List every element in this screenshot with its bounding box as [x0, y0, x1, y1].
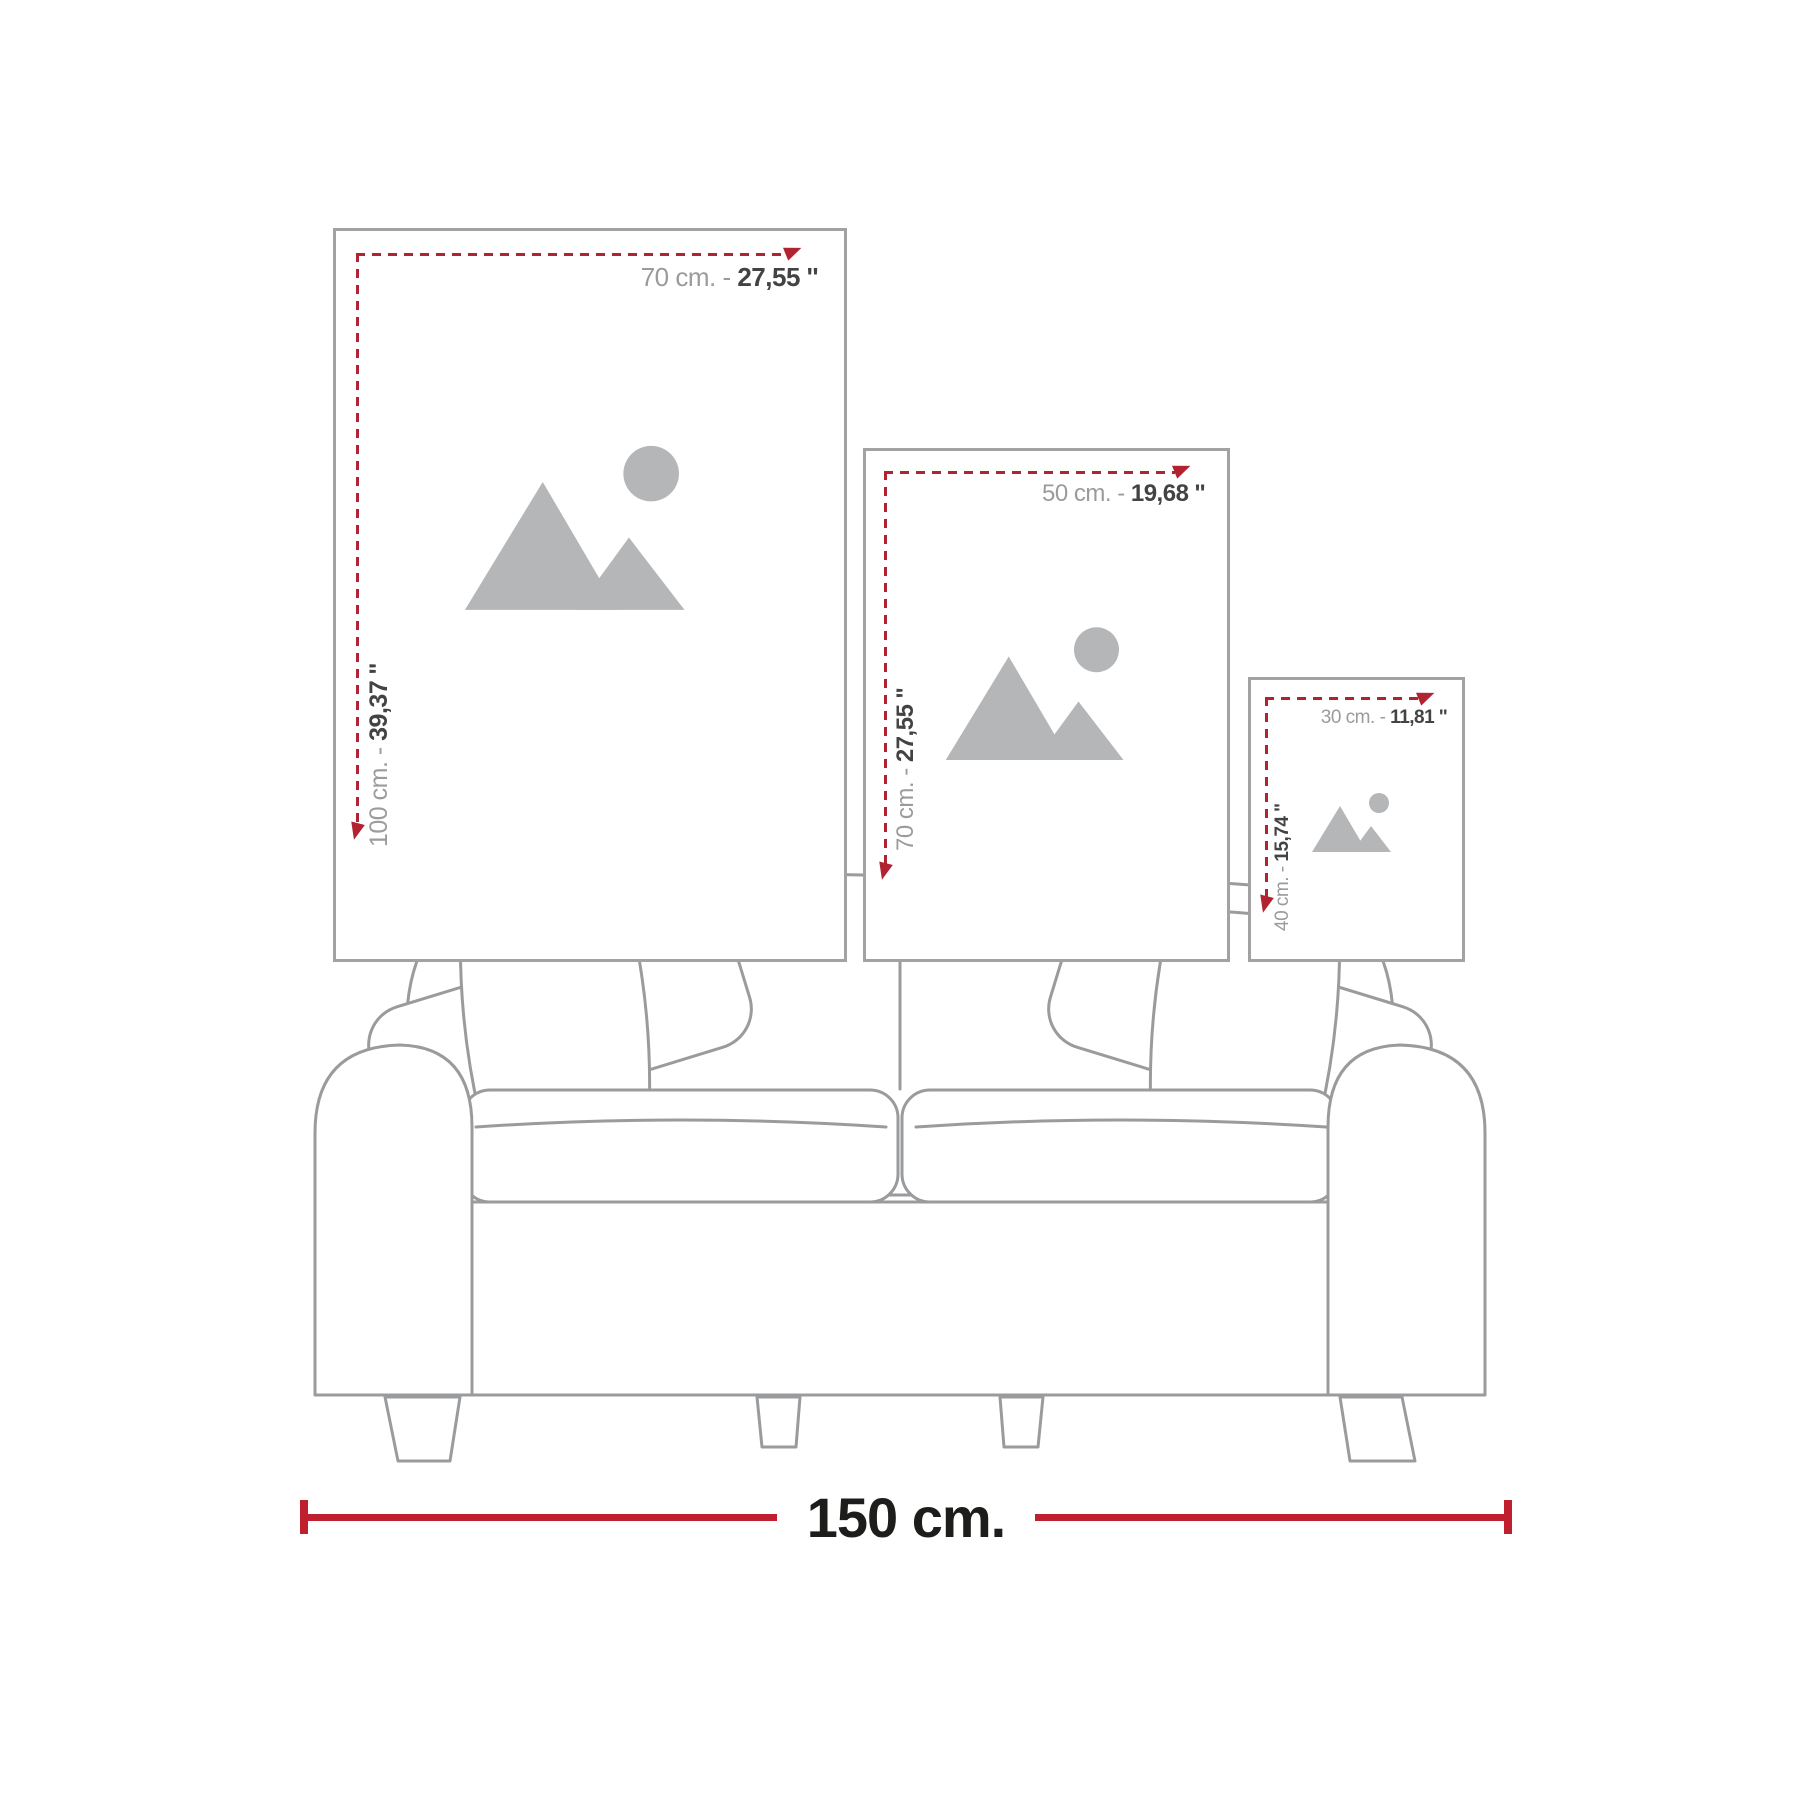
measure-line-left: [308, 1514, 777, 1521]
height-inches-text: 15,74 '': [1272, 804, 1293, 862]
width-measure-dashed-line: [884, 471, 1175, 474]
height-cm-text: 100 cm. -: [365, 741, 393, 847]
height-cm-text: 70 cm. -: [892, 762, 919, 851]
width-inches-text: 19,68 '': [1131, 480, 1205, 507]
image-placeholder-icon: [1307, 792, 1407, 856]
sofa-width-label: 150 cm.: [807, 1485, 1006, 1550]
arrow-down-icon: [347, 822, 365, 842]
height-measure-dashed-line: [356, 253, 359, 829]
width-label: 30 cm. - 11,81 '': [1321, 707, 1447, 729]
width-inches-text: 11,81 '': [1390, 707, 1447, 728]
image-placeholder-icon: [934, 625, 1159, 769]
measure-endcap-left: [300, 1500, 308, 1534]
height-inches-text: 39,37 '': [365, 663, 393, 740]
width-label: 50 cm. - 19,68 '': [1042, 480, 1205, 508]
width-measure-dashed-line: [356, 253, 786, 256]
height-measure-dashed-line: [1265, 697, 1268, 903]
width-measure-dashed-line: [1265, 697, 1420, 700]
poster-frame-70x100: 70 cm. - 27,55 '' 100 cm. - 39,37 '': [333, 228, 847, 962]
size-guide-diagram: 70 cm. - 27,55 '' 100 cm. - 39,37 '' 50 …: [0, 0, 1800, 1800]
arrow-right-icon: [1416, 686, 1437, 705]
height-label: 40 cm. - 15,74 '': [1272, 804, 1294, 931]
height-label: 70 cm. - 27,55 '': [892, 688, 920, 851]
sofa-foot-mid-right: [1000, 1397, 1043, 1447]
width-cm-text: 70 cm. -: [641, 262, 738, 292]
sofa-foot-right: [1340, 1397, 1415, 1461]
poster-frame-30x40: 30 cm. - 11,81 '' 40 cm. - 15,74 '': [1248, 677, 1465, 962]
height-measure-dashed-line: [884, 471, 887, 869]
width-inches-text: 27,55 '': [737, 262, 818, 292]
image-placeholder-icon: [451, 443, 729, 621]
sofa-base: [450, 1202, 1350, 1395]
arrow-right-icon: [783, 241, 804, 260]
measure-endcap-right: [1504, 1500, 1512, 1534]
width-cm-text: 50 cm. -: [1042, 480, 1131, 507]
seat-cushion-left: [462, 1090, 898, 1202]
width-cm-text: 30 cm. -: [1321, 707, 1390, 728]
sofa-foot-mid-left: [757, 1397, 800, 1447]
sofa-arm-left: [315, 1045, 472, 1395]
height-inches-text: 27,55 '': [892, 688, 919, 762]
sofa-foot-left: [385, 1397, 460, 1461]
width-label: 70 cm. - 27,55 '': [641, 262, 818, 293]
measure-line-right: [1035, 1514, 1504, 1521]
sofa-arm-right: [1328, 1045, 1485, 1395]
sofa-width-measure: 150 cm.: [300, 1494, 1512, 1540]
height-cm-text: 40 cm. -: [1272, 862, 1293, 931]
arrow-down-icon: [875, 862, 893, 882]
poster-frame-50x70: 50 cm. - 19,68 '' 70 cm. - 27,55 '': [863, 448, 1230, 962]
height-label: 100 cm. - 39,37 '': [365, 663, 394, 847]
arrow-right-icon: [1172, 459, 1193, 478]
seat-cushion-right: [902, 1090, 1338, 1202]
